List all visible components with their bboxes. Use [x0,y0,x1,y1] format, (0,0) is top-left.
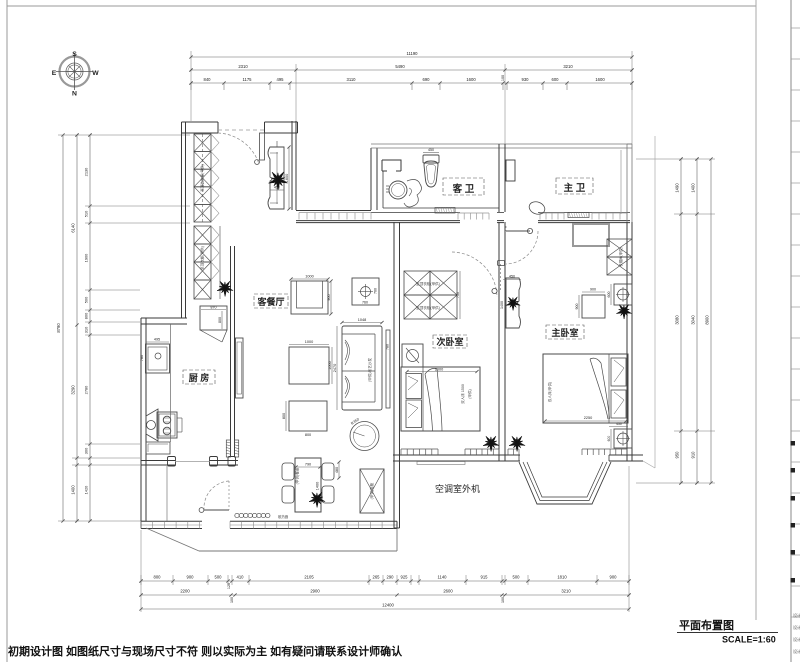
svg-text:290: 290 [387,575,395,580]
svg-text:至顶衣柜(甲供): 至顶衣柜(甲供) [200,246,205,270]
svg-text:495: 495 [277,77,285,82]
svg-text:1400: 1400 [316,482,320,490]
svg-text:265: 265 [373,575,381,580]
svg-text:1600: 1600 [466,77,476,82]
svg-text:(甲供): (甲供) [467,389,472,399]
svg-text:3080: 3080 [675,315,680,325]
svg-text:次卧室: 次卧室 [436,336,463,347]
svg-text:S: S [72,51,77,58]
svg-text:1490: 1490 [675,183,680,193]
svg-text:800: 800 [282,413,286,419]
svg-text:950: 950 [675,451,680,459]
svg-text:2105: 2105 [304,575,314,580]
svg-text:设计: 设计 [793,648,800,654]
svg-text:600: 600 [607,436,611,442]
svg-text:主卧室: 主卧室 [551,327,578,338]
svg-text:设计: 设计 [793,612,800,618]
svg-text:(甲供)鞋柜: (甲供)鞋柜 [369,482,374,499]
svg-text:双人床(甲供): 双人床(甲供) [547,382,552,402]
svg-text:E: E [52,70,57,77]
svg-text:915: 915 [481,575,489,580]
svg-text:8790: 8790 [56,323,61,333]
svg-text:至顶衣柜(甲供): 至顶衣柜(甲供) [416,305,440,310]
svg-text:800: 800 [218,317,222,323]
svg-text:450: 450 [509,275,515,279]
svg-text:1000: 1000 [305,275,313,279]
svg-text:设计: 设计 [793,624,800,630]
svg-text:平面布置图: 平面布置图 [679,618,734,632]
svg-text:1175: 1175 [242,77,252,82]
svg-text:760: 760 [362,301,368,305]
svg-text:450: 450 [616,422,622,426]
svg-text:厨 房: 厨 房 [189,372,210,383]
svg-text:12400: 12400 [382,603,394,608]
svg-text:300: 300 [84,447,89,454]
svg-text:3210: 3210 [561,589,571,594]
svg-text:510: 510 [84,210,89,217]
svg-text:2900: 2900 [310,589,320,594]
svg-text:100: 100 [501,75,505,81]
svg-text:1600: 1600 [285,174,289,182]
svg-text:1400: 1400 [500,301,504,309]
svg-text:780: 780 [140,355,144,361]
svg-text:初期设计图 如图纸尺寸与现场尺寸不符 则以实际为主 如: 初期设计图 如图纸尺寸与现场尺寸不符 则以实际为主 如有疑问请联系设计师确认 [8,644,403,658]
svg-text:1900: 1900 [84,253,89,262]
svg-text:500: 500 [215,575,223,580]
svg-text:(甲供)布艺沙发: (甲供)布艺沙发 [367,358,372,382]
svg-text:900: 900 [327,294,331,300]
svg-text:760: 760 [374,288,378,294]
svg-text:1600: 1600 [595,77,605,82]
svg-text:11190: 11190 [406,51,418,56]
svg-text:750: 750 [456,292,460,298]
svg-text:(甲供)餐桌: (甲供)餐桌 [295,467,300,484]
svg-text:1420: 1420 [84,485,89,494]
svg-text:2200: 2200 [180,589,190,594]
svg-text:450: 450 [274,186,280,190]
svg-text:衣帽间(甲供): 衣帽间(甲供) [618,247,623,266]
svg-text:600: 600 [552,77,560,82]
svg-text:SCALE=1:60: SCALE=1:60 [722,635,776,645]
svg-text:1000: 1000 [328,361,332,369]
svg-text:至顶装饰柜(甲供): 至顶装饰柜(甲供) [200,164,205,192]
svg-text:至顶衣柜(甲供): 至顶衣柜(甲供) [416,281,440,286]
svg-text:N: N [72,91,77,98]
svg-text:8900: 8900 [705,315,710,325]
svg-text:500: 500 [84,296,89,303]
svg-text:900: 900 [187,575,195,580]
svg-text:450: 450 [428,148,434,152]
svg-text:客 卫: 客 卫 [452,183,475,195]
svg-text:1400: 1400 [71,485,76,495]
svg-text:600: 600 [607,292,611,298]
svg-text:1000: 1000 [305,340,313,344]
svg-text:2310: 2310 [238,64,248,69]
svg-text:设计: 设计 [793,636,800,642]
svg-text:910: 910 [691,451,696,459]
svg-text:W: W [92,70,99,77]
svg-text:1400: 1400 [691,183,696,193]
svg-text:6140: 6140 [71,223,76,233]
svg-text:930: 930 [522,77,530,82]
svg-text:500: 500 [513,575,521,580]
svg-text:480: 480 [335,467,339,473]
svg-text:散热器: 散热器 [278,514,289,519]
svg-text:主 卫: 主 卫 [564,182,586,194]
svg-text:1810: 1810 [557,575,567,580]
svg-text:2130: 2130 [84,167,89,176]
svg-text:2000: 2000 [435,368,443,372]
svg-text:5490: 5490 [395,64,405,69]
svg-text:790: 790 [305,463,311,467]
svg-text:双人床 1500: 双人床 1500 [460,384,465,404]
svg-text:840: 840 [204,77,212,82]
svg-text:495: 495 [154,338,160,342]
svg-text:3210: 3210 [563,64,573,69]
svg-text:410: 410 [237,575,245,580]
svg-text:2250: 2250 [584,416,592,420]
svg-text:3290: 3290 [71,385,76,395]
svg-text:120: 120 [227,583,231,589]
svg-text:870: 870 [211,306,217,310]
svg-text:690: 690 [423,77,431,82]
svg-text:800: 800 [305,433,311,437]
svg-text:900: 900 [590,288,596,292]
svg-text:3110: 3110 [346,77,356,82]
svg-text:100: 100 [501,597,505,603]
svg-text:客餐厅: 客餐厅 [256,296,284,307]
svg-text:310: 310 [84,326,89,333]
svg-text:800: 800 [154,575,162,580]
svg-text:900: 900 [575,304,579,310]
svg-text:2600: 2600 [443,589,453,594]
svg-text:780: 780 [386,344,390,350]
svg-text:925: 925 [401,575,409,580]
svg-text:空调室外机: 空调室外机 [435,483,480,494]
svg-text:1140: 1140 [437,575,447,580]
svg-text:2470: 2470 [333,364,337,372]
svg-text:800: 800 [84,312,89,319]
svg-text:1048: 1048 [358,318,366,322]
svg-text:3040: 3040 [691,315,696,325]
svg-text:2780: 2780 [84,385,89,394]
svg-text:900: 900 [610,575,618,580]
svg-text:100: 100 [230,597,234,603]
